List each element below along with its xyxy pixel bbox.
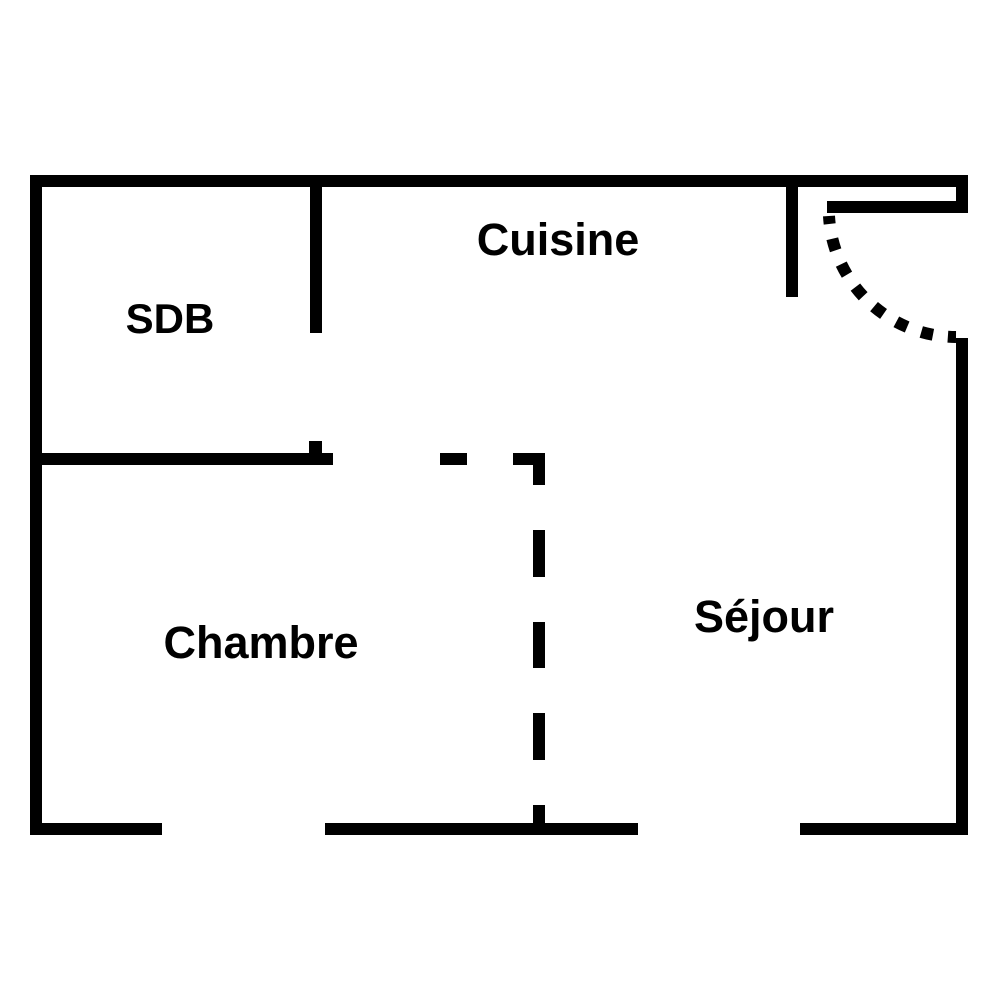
floor-plan: SDB Cuisine Chambre Séjour xyxy=(0,0,1000,1000)
wall-outer-bottom-left xyxy=(30,823,162,835)
floor-plan-canvas: SDB Cuisine Chambre Séjour xyxy=(0,0,1000,1000)
room-label-sdb: SDB xyxy=(126,295,215,342)
open-partition-dashed-line xyxy=(440,453,545,823)
wall-sdb-right xyxy=(310,187,322,333)
partition-h-dash xyxy=(440,453,467,465)
room-labels: SDB Cuisine Chambre Séjour xyxy=(126,214,834,668)
entry-door xyxy=(827,187,968,337)
wall-sdb-bottom xyxy=(30,453,333,465)
wall-outer-top xyxy=(30,175,968,187)
partition-v-stub xyxy=(533,805,545,823)
wall-outer-left xyxy=(30,175,42,835)
partition-v-dash-3 xyxy=(533,713,545,760)
wall-sdb-door-stub xyxy=(309,441,322,454)
room-label-cuisine: Cuisine xyxy=(477,214,640,265)
partition-v-dash-2 xyxy=(533,622,545,668)
wall-outer-bottom-right xyxy=(800,823,968,835)
outer-walls xyxy=(30,175,968,835)
entry-door-swing-arc xyxy=(829,216,956,337)
entry-door-leaf xyxy=(827,201,968,213)
wall-outer-bottom-middle xyxy=(325,823,638,835)
room-label-chambre: Chambre xyxy=(163,617,358,668)
room-label-sejour: Séjour xyxy=(694,591,834,642)
wall-outer-right xyxy=(956,338,968,835)
wall-cuisine-left xyxy=(786,187,798,297)
partition-v-dash-1 xyxy=(533,530,545,577)
partition-corner-v-dash xyxy=(533,453,545,485)
